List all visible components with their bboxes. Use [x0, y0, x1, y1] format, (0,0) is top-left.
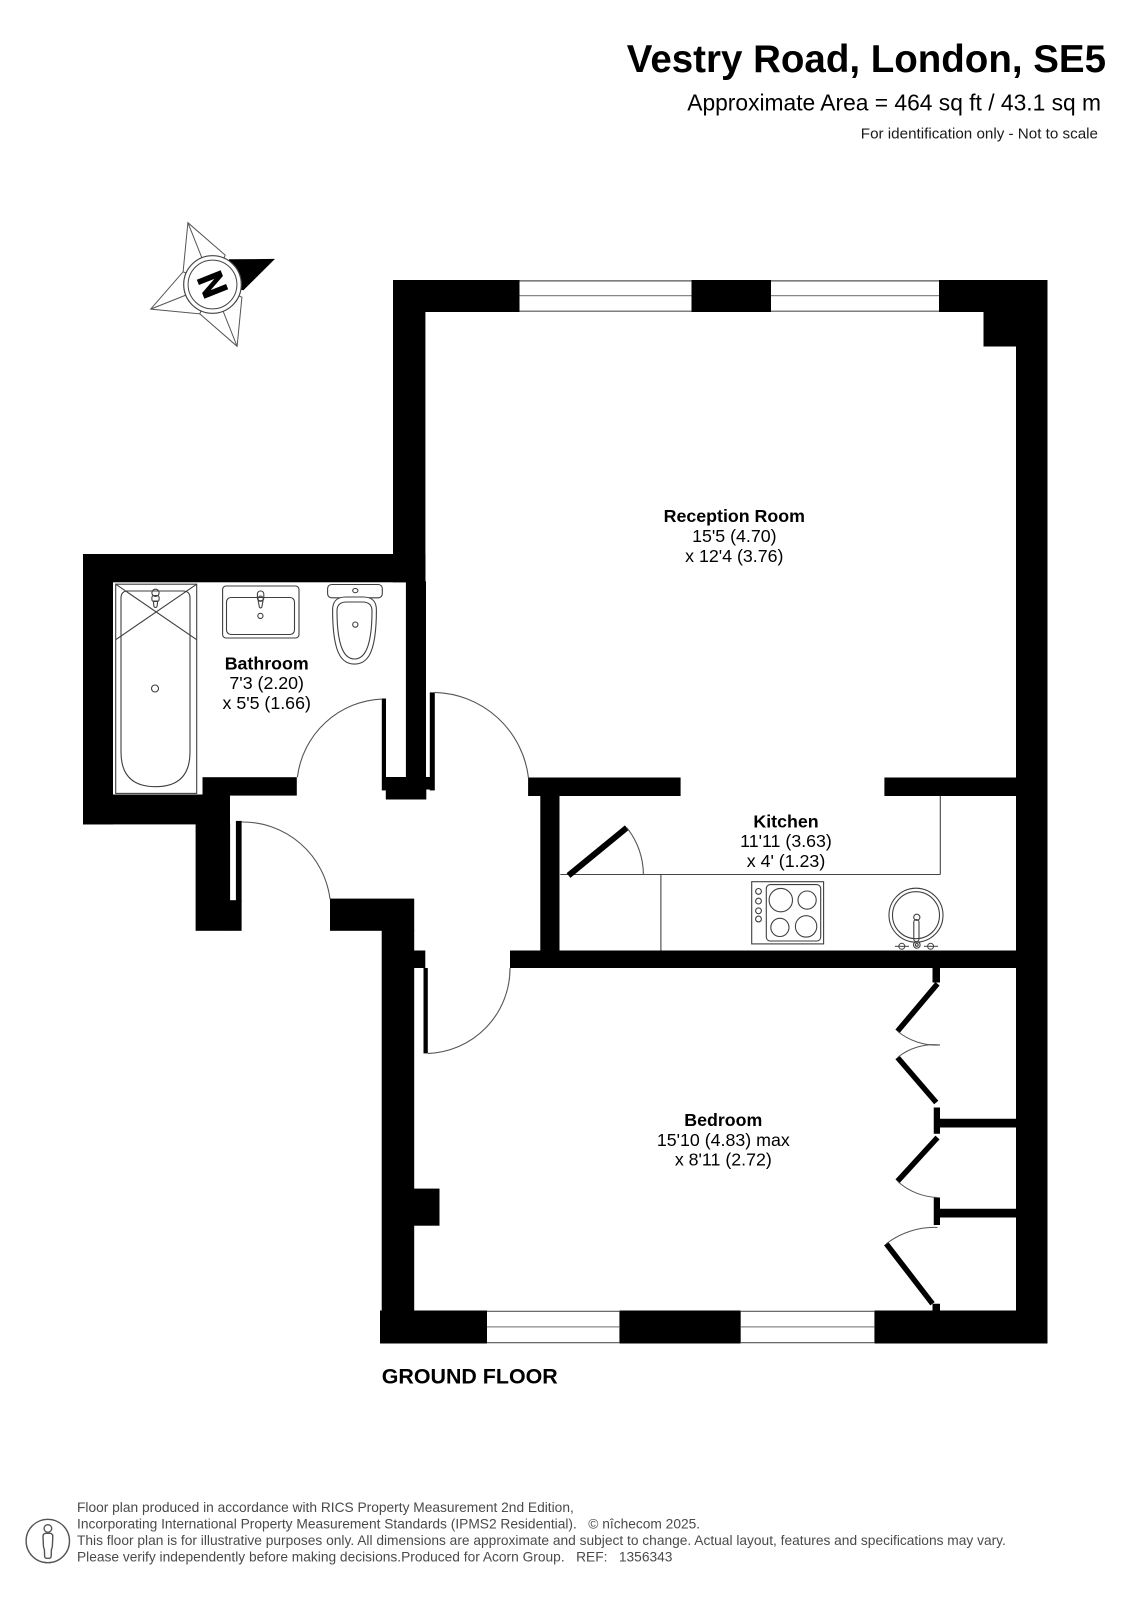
- svg-text:Approximate Area = 464 sq ft /: Approximate Area = 464 sq ft / 43.1 sq m: [687, 89, 1101, 115]
- svg-text:Bedroom: Bedroom: [684, 1110, 762, 1130]
- svg-text:11'11 (3.63): 11'11 (3.63): [740, 831, 832, 851]
- svg-text:x 4' (1.23): x 4' (1.23): [747, 851, 826, 871]
- svg-text:Incorporating International Pr: Incorporating International Property Mea…: [77, 1517, 700, 1532]
- svg-text:Reception Room: Reception Room: [664, 506, 805, 526]
- svg-text:7'3 (2.20): 7'3 (2.20): [229, 673, 304, 693]
- svg-text:Bathroom: Bathroom: [225, 653, 309, 673]
- svg-text:x 8'11 (2.72): x 8'11 (2.72): [675, 1150, 772, 1170]
- svg-text:Kitchen: Kitchen: [753, 811, 818, 831]
- svg-text:GROUND FLOOR: GROUND FLOOR: [382, 1365, 558, 1389]
- svg-text:Please verify independently be: Please verify independently before makin…: [77, 1550, 673, 1565]
- svg-text:15'5 (4.70): 15'5 (4.70): [692, 526, 776, 546]
- svg-text:x 12'4 (3.76): x 12'4 (3.76): [685, 546, 783, 566]
- svg-text:Vestry Road, London, SE5: Vestry Road, London, SE5: [627, 38, 1106, 81]
- svg-text:For identification only - Not: For identification only - Not to scale: [861, 125, 1098, 142]
- svg-text:x 5'5 (1.66): x 5'5 (1.66): [222, 693, 310, 713]
- svg-text:This floor plan is for illustr: This floor plan is for illustrative purp…: [77, 1533, 1006, 1548]
- svg-text:15'10 (4.83) max: 15'10 (4.83) max: [657, 1130, 790, 1150]
- svg-text:Floor plan produced in accorda: Floor plan produced in accordance with R…: [77, 1500, 574, 1515]
